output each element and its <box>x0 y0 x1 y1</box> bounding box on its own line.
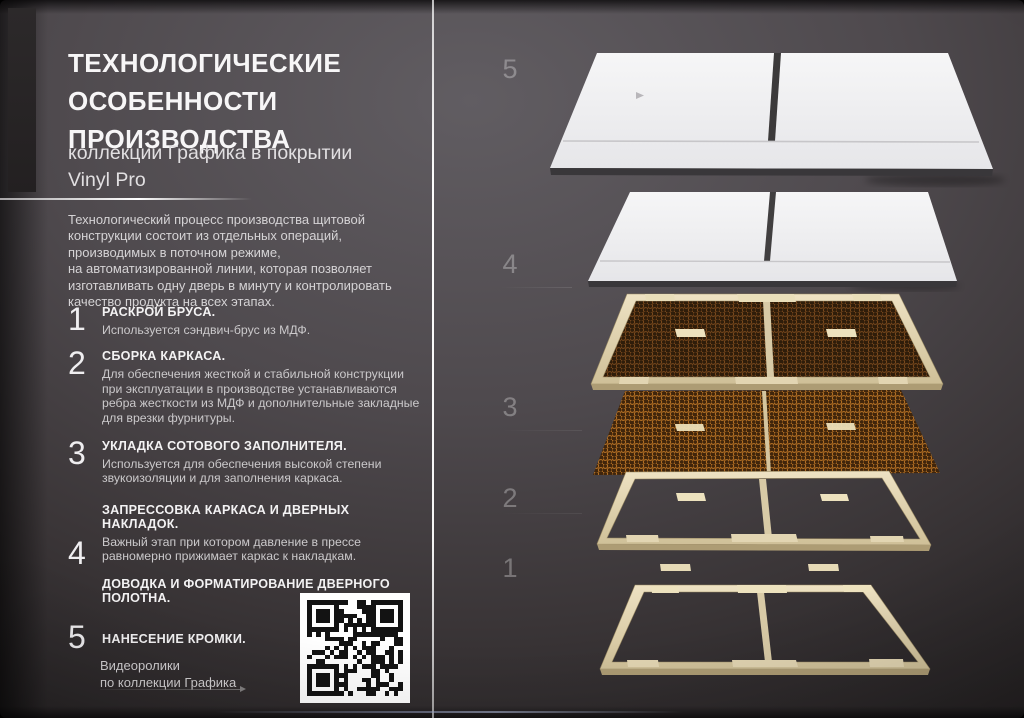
layer-5-finished-door <box>550 53 1005 186</box>
diagram-layer-number-1: 1 <box>495 555 525 582</box>
diagram-layer-number-3: 3 <box>495 394 525 421</box>
layer-4-pressed-panel <box>588 192 960 291</box>
door-layers-diagram <box>0 0 1024 718</box>
layer-3-honeycomb-frame <box>591 294 943 390</box>
slide-page: ТЕХНОЛОГИЧЕСКИЕ ОСОБЕННОСТИ ПРОИЗВОДСТВА… <box>0 0 1024 718</box>
guide-line <box>500 287 572 288</box>
layer-2-honeycomb-filler <box>593 390 940 475</box>
guide-line <box>502 430 582 431</box>
diagram-layer-number-2: 2 <box>495 485 525 512</box>
guide-line <box>502 513 582 514</box>
layer-1-frame-parts <box>600 585 930 675</box>
frame-tab-pieces <box>660 564 839 571</box>
diagram-layer-number-5: 5 <box>495 56 525 83</box>
diagram-layer-number-4: 4 <box>495 251 525 278</box>
layer-2-assembled-frame <box>597 471 931 551</box>
